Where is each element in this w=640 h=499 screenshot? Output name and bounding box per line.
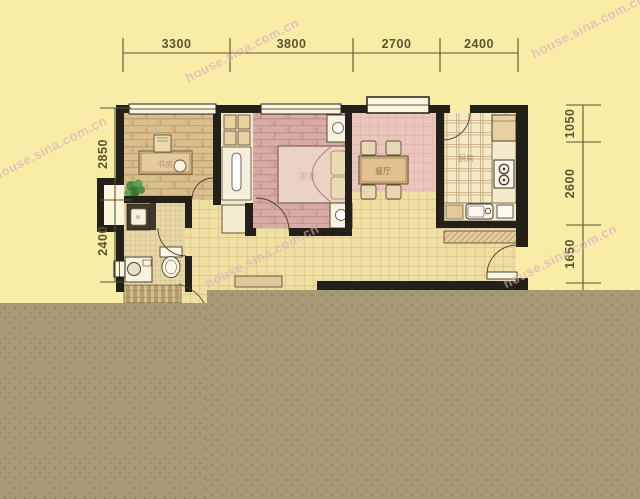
dim-right-3: 1650 [563,239,577,269]
fridge [492,115,516,141]
censor-band-left [0,303,207,499]
wall-bedroom-bottom-a [253,228,256,236]
floor-plan-image: 书房 卧室 餐厅 厨房 3300 3800 2700 2400 2850 240… [0,0,640,499]
balcony-interior [104,185,124,225]
wall-bathroom-right-a [185,196,192,228]
wall-hall-pier [245,203,253,236]
dim-right-1: 1050 [563,109,577,139]
dim-left-1: 2850 [96,139,110,169]
dim-top-3: 2700 [382,37,412,51]
kitchen-cabinet [446,205,463,219]
stool [154,135,171,152]
entry-door-panel [487,272,517,279]
kitchen-label: 厨房 [458,153,474,163]
tv-cabinet [235,276,282,287]
wall-left-lower [116,276,124,292]
wall-left-mid [116,232,124,262]
bar-counter [444,231,517,243]
wall-right-upper [516,105,528,247]
dim-top-2: 3800 [277,37,307,51]
dim-top-1: 3300 [162,37,192,51]
censor-band-right [207,290,640,499]
pillow [331,151,346,175]
dining-chair [386,185,401,199]
wall-study-right [213,113,221,205]
dining-chair [361,185,376,199]
entry-door-opening [516,247,528,278]
dim-left-2: 2400 [96,226,110,256]
wall-bedroom-right [345,113,352,236]
pillow [331,177,346,199]
toilet-bowl [162,257,180,278]
kitchen-door-opening [450,105,470,113]
wall-kitchen-bottom [436,221,517,228]
dining-chair [386,141,401,155]
wall-left-upper [116,105,124,178]
balcony-mat [124,285,181,303]
drain-board [497,205,513,218]
bathroom-partition [150,203,156,230]
wall-kitchen-left [436,113,444,221]
lamp [333,123,344,134]
desk-chair [174,160,186,172]
dim-top-4: 2400 [464,37,494,51]
study-label: 书房 [157,159,173,169]
bedroom-label: 卧室 [300,171,316,181]
dining-label: 餐厅 [375,167,391,176]
wall-bedroom-bottom-b [289,228,352,236]
dim-right-2: 2600 [563,169,577,199]
dining-chair [361,141,376,155]
lamp [336,210,347,221]
wardrobe-handle [232,153,241,191]
